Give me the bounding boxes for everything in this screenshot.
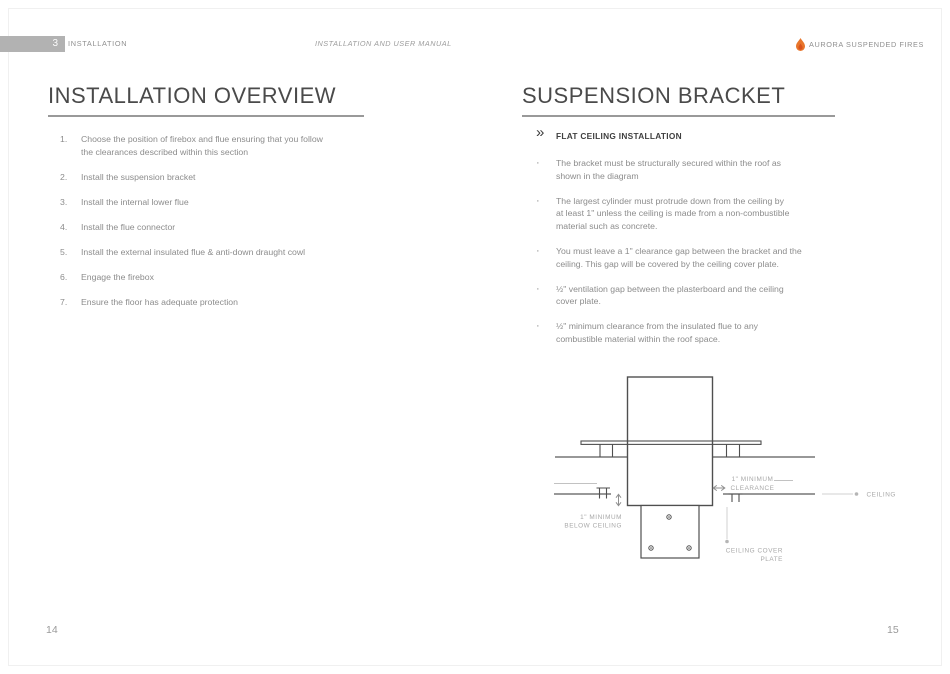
list-item: · The largest cylinder must protrude dow…	[536, 195, 838, 233]
right-page-title: SUSPENSION BRACKET	[522, 83, 785, 109]
step-text: Install the flue connector	[81, 221, 378, 234]
step-number: 6.	[48, 271, 81, 284]
brand-name: AURORA SUSPENDED FIRES	[809, 40, 924, 49]
cover-plate-label-line1: CEILING COVER	[726, 548, 783, 555]
list-item: · You must leave a 1" clearance gap betw…	[536, 245, 838, 270]
right-page-number: 15	[887, 624, 899, 636]
bullet-text: ½" minimum clearance from the insulated …	[556, 320, 838, 345]
list-item: 7. Ensure the floor has adequate protect…	[48, 296, 378, 309]
bullet-icon: ·	[536, 195, 556, 233]
list-item: · ½" minimum clearance from the insulate…	[536, 320, 838, 345]
list-item: · ½" ventilation gap between the plaster…	[536, 283, 838, 308]
step-number: 3.	[48, 196, 81, 209]
manual-spread: 3 INSTALLATION INSTALLATION AND USER MAN…	[0, 0, 950, 674]
ceiling-leader-dot	[855, 492, 859, 496]
fixing-clamp-right	[729, 494, 743, 502]
step-text: Install the suspension bracket	[81, 171, 378, 184]
step-text: Choose the position of firebox and flue …	[81, 133, 378, 158]
section-number: 3	[0, 36, 65, 52]
clearance-label-line2: CLEARANCE	[730, 485, 774, 492]
list-item: 2. Install the suspension bracket	[48, 171, 378, 184]
manual-title: INSTALLATION AND USER MANUAL	[315, 36, 452, 52]
list-item: 4. Install the flue connector	[48, 221, 378, 234]
step-text: Ensure the floor has adequate protection	[81, 296, 378, 309]
step-number: 1.	[48, 133, 81, 158]
bullet-text: The bracket must be structurally secured…	[556, 157, 838, 182]
section-label: INSTALLATION	[68, 36, 127, 52]
below-ceiling-label-line2: BELOW CEILING	[564, 523, 622, 530]
below-ceiling-arrow	[616, 494, 621, 505]
step-number: 7.	[48, 296, 81, 309]
cover-plate-leader-dot	[725, 540, 729, 544]
step-number: 2.	[48, 171, 81, 184]
bullet-text: You must leave a 1" clearance gap betwee…	[556, 245, 838, 270]
flat-ceiling-heading: FLAT CEILING INSTALLATION	[556, 131, 682, 141]
clearance-arrow	[713, 485, 725, 490]
below-ceiling-label-line1: 1" MINIMUM	[580, 514, 622, 521]
brand-lockup: AURORA SUSPENDED FIRES	[796, 36, 924, 52]
step-number: 5.	[48, 246, 81, 259]
flame-icon	[796, 38, 805, 51]
step-text: Install the external insulated flue & an…	[81, 246, 378, 259]
bullet-icon: ·	[536, 157, 556, 182]
clearance-label-line1: 1" MINIMUM	[732, 476, 774, 483]
bullet-icon: ·	[536, 245, 556, 270]
section-number-tab: 3	[0, 36, 65, 52]
bullet-icon: ·	[536, 320, 556, 345]
bullet-text: ½" ventilation gap between the plasterbo…	[556, 283, 838, 308]
step-text: Install the internal lower flue	[81, 196, 378, 209]
step-text: Engage the firebox	[81, 271, 378, 284]
bullet-text: The largest cylinder must protrude down …	[556, 195, 838, 233]
list-item: 1. Choose the position of firebox and fl…	[48, 133, 378, 158]
installation-steps-list: 1. Choose the position of firebox and fl…	[48, 133, 378, 321]
cover-plate-label-line2: PLATE	[760, 556, 783, 563]
list-item: 3. Install the internal lower flue	[48, 196, 378, 209]
list-item: · The bracket must be structurally secur…	[536, 157, 838, 182]
list-item: 6. Engage the firebox	[48, 271, 378, 284]
list-item: 5. Install the external insulated flue &…	[48, 246, 378, 259]
suspension-bullet-list: · The bracket must be structurally secur…	[536, 157, 838, 358]
bullet-icon: ·	[536, 283, 556, 308]
fixing-clamp-left	[597, 488, 611, 499]
left-title-rule	[48, 115, 364, 117]
suspension-bracket-diagram: CEILING CEILING COVER PLATE 1" MINIMUM C…	[545, 368, 925, 570]
left-page-title: INSTALLATION OVERVIEW	[48, 83, 336, 109]
right-title-rule	[522, 115, 835, 117]
left-page-number: 14	[46, 624, 58, 636]
step-number: 4.	[48, 221, 81, 234]
ceiling-label: CEILING	[867, 492, 896, 499]
double-chevron-icon: »	[536, 124, 544, 141]
